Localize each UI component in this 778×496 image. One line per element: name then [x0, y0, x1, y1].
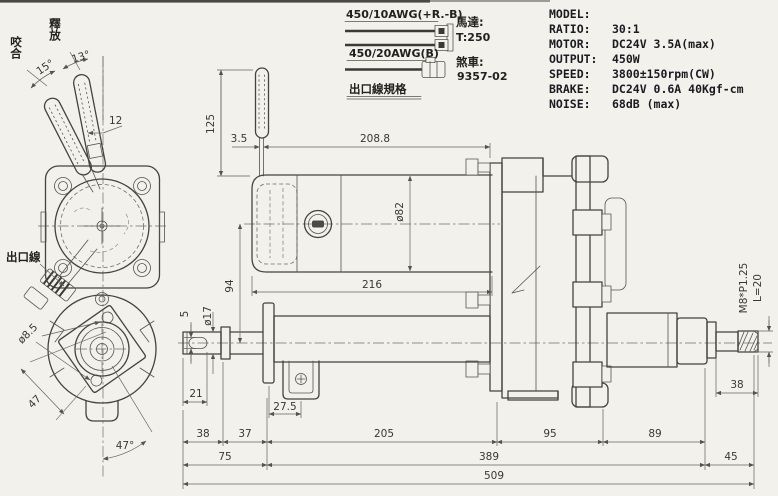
dim-82-value: ø82 [394, 202, 406, 222]
output-shaft-plain [716, 332, 738, 351]
gearbox-bolts [466, 159, 490, 377]
dim-89-value: 89 [648, 428, 661, 440]
wiring-diagram: 450/10AWG(+R.-B) 450/20AWG(B) 馬達: T:250 … [345, 8, 508, 99]
dim-275-value: 27.5 [273, 401, 296, 413]
dim-47-value: 47 [26, 393, 44, 411]
output-step [677, 318, 707, 364]
spec-value-ratio: 30:1 [612, 22, 640, 36]
dim-17-value: ø17 [202, 306, 214, 326]
spec-label-output: OUTPUT: [549, 52, 597, 66]
spec-label-noise: NOISE: [549, 97, 591, 111]
dim-21-value: 21 [189, 388, 202, 400]
wire-bottom-label: 450/20AWG(B) [349, 47, 439, 60]
spec-label-motor: MOTOR: [549, 37, 591, 51]
release-label: 釋放 [48, 17, 62, 42]
side-lever-texture [259, 75, 265, 130]
spec-label-speed: SPEED: [549, 67, 591, 81]
spec-value-speed: 3800±150rpm(CW) [612, 67, 716, 81]
dim-216-value: 216 [362, 279, 382, 291]
rear-plate [605, 198, 626, 290]
drawing-canvas: 出口線 咬合 釋放 15° 13° 12 ø8.5 [0, 0, 778, 496]
spec-value-output: 450W [612, 52, 640, 66]
dim-37-value: 37 [238, 428, 251, 440]
axle-tube [274, 316, 490, 362]
output-shaft [607, 313, 758, 367]
motor-conn-value: T:250 [456, 31, 491, 44]
hole-leader-2 [42, 322, 100, 336]
photo-edge-fade [430, 0, 550, 2]
angle-left-value: 15° [34, 57, 56, 77]
dim-125-value: 125 [205, 114, 217, 134]
extension-lines [27, 52, 103, 120]
thread-spec-value: M8*P1.25 [738, 263, 750, 314]
outlet-wire-label: 出口線 [6, 250, 41, 264]
motor-wires [345, 31, 436, 45]
dim-3p5-value: 3.5 [231, 133, 248, 145]
wire-arm [58, 240, 97, 285]
dim-95-value: 95 [543, 428, 556, 440]
flange-lug-right [160, 212, 165, 242]
side-lever-stem [260, 138, 264, 176]
motor-body [252, 175, 492, 272]
wiring-caption: 出口線規格 [349, 82, 407, 96]
bottom-tab [86, 401, 118, 421]
lever-engage [42, 96, 94, 178]
gearbox-top-block [502, 158, 543, 192]
side-lever-handle [256, 68, 269, 138]
wire-top-label: 450/10AWG(+R.-B) [346, 8, 463, 21]
dim-47-ext [30, 332, 106, 420]
angle47-radial [112, 366, 152, 432]
angle47-value: 47° [116, 440, 135, 452]
dim-94-value: 94 [224, 279, 236, 293]
motor-terminal-slot [312, 221, 324, 228]
spec-table: MODEL: RATIO: 30:1 MOTOR: DC24V 3.5A(max… [549, 7, 744, 111]
dim-5-value: 5 [179, 311, 191, 318]
thread-len-value: L=20 [752, 274, 764, 302]
dim-389-value: 389 [479, 451, 499, 463]
front-view: 出口線 咬合 釋放 15° 13° 12 ø8.5 [6, 17, 168, 478]
engineering-drawing: 出口線 咬合 釋放 15° 13° 12 ø8.5 [0, 0, 778, 496]
gearbox [466, 156, 626, 407]
gearbox-housing-outline [502, 158, 572, 398]
spec-value-motor: DC24V 3.5A(max) [612, 37, 716, 51]
dim-47-line [21, 369, 64, 414]
dim-509-value: 509 [484, 470, 504, 482]
hub-crosshair [76, 323, 128, 375]
spec-value-brake: DC24V 0.6A 40Kgf-cm [612, 82, 744, 96]
output-collar [707, 322, 716, 358]
spec-label-model: MODEL: [549, 7, 591, 21]
spec-value-noise: 68dB (max) [612, 97, 681, 111]
gearbox-flange [46, 166, 160, 288]
spec-label-brake: BRAKE: [549, 82, 591, 96]
dim-45-value: 45 [724, 451, 737, 463]
dim-125-lines [217, 70, 253, 176]
dim-75-value: 75 [218, 451, 231, 463]
caption-underline [347, 97, 421, 100]
wire-bundle-end [23, 286, 48, 310]
side-view: 125 3.5 208.8 ø82 216 94 5 ø17 21 27.5 [178, 68, 773, 489]
photo-edge [0, 0, 430, 3]
dim-12-leader [103, 126, 122, 133]
output-hub [607, 313, 677, 367]
brake-conn-label: 煞車: [456, 55, 484, 69]
lever-release [72, 73, 107, 173]
internal-detail [74, 208, 129, 252]
motor-conn-label: 馬達: [456, 15, 484, 29]
dim-38b-value: 38 [730, 379, 743, 391]
dim-12-value: 12 [109, 115, 122, 127]
output-thread [738, 331, 758, 352]
spec-label-ratio: RATIO: [549, 22, 591, 36]
dim-208-value: 208.8 [360, 133, 390, 145]
brake-conn-value: 9357-02 [457, 70, 508, 83]
dim-205-value: 205 [374, 428, 394, 440]
axle-shaft [183, 303, 490, 399]
engage-label: 咬合 [9, 35, 23, 60]
dim-38a-value: 38 [196, 428, 209, 440]
lever-stems [82, 170, 100, 192]
angle-right-value: 13° [70, 49, 91, 66]
thread-hatch [738, 332, 758, 351]
